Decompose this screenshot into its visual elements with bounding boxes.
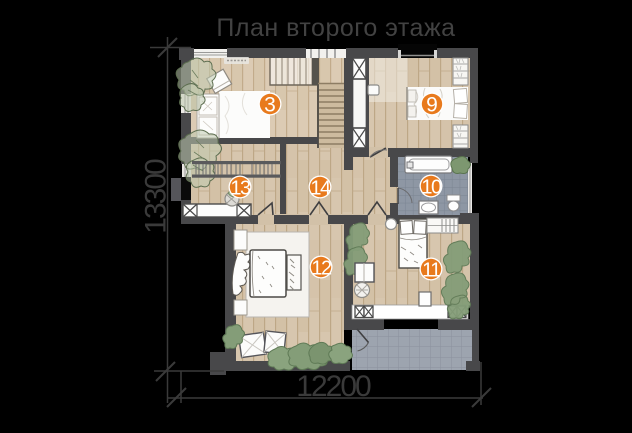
- svg-text:13: 13: [230, 178, 251, 200]
- svg-text:11: 11: [422, 260, 441, 282]
- svg-text:12: 12: [311, 258, 332, 280]
- svg-text:12200: 12200: [296, 370, 371, 403]
- svg-text:9: 9: [426, 94, 438, 117]
- svg-text:10: 10: [421, 177, 442, 199]
- svg-text:13300: 13300: [140, 159, 173, 234]
- svg-text:3: 3: [264, 94, 276, 117]
- svg-text:14: 14: [310, 178, 331, 200]
- svg-text:План второго этажа: План второго этажа: [216, 14, 455, 42]
